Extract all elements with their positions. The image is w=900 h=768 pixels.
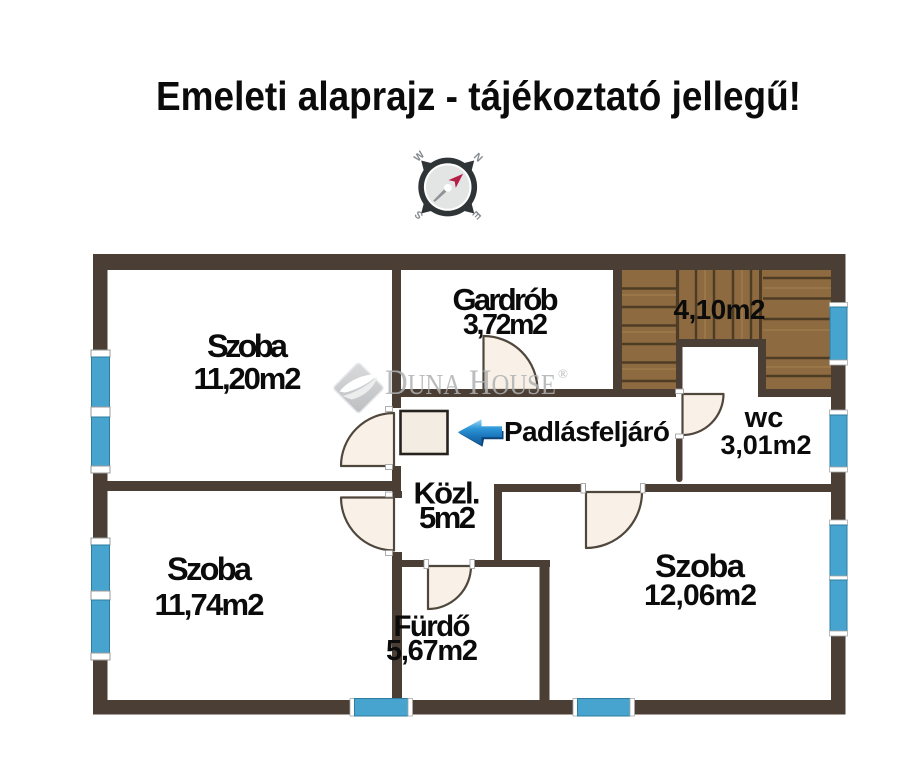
- svg-text:5,67m2: 5,67m2: [386, 635, 478, 667]
- svg-text:®: ®: [558, 366, 568, 381]
- svg-text:3,01m2: 3,01m2: [721, 430, 812, 460]
- svg-text:Szoba: Szoba: [207, 328, 289, 364]
- svg-text:12,06m2: 12,06m2: [644, 579, 757, 612]
- svg-text:Szoba: Szoba: [167, 551, 253, 587]
- svg-text:Padlásfeljáró: Padlásfeljáró: [504, 416, 670, 447]
- svg-text:3,72m2: 3,72m2: [463, 309, 548, 341]
- svg-text:4,10m2: 4,10m2: [674, 294, 766, 325]
- svg-text:11,74m2: 11,74m2: [155, 587, 265, 622]
- svg-text:5m2: 5m2: [419, 500, 476, 535]
- svg-text:Emeleti alaprajz - tájékoztató: Emeleti alaprajz - tájékoztató jellegű!: [156, 73, 801, 119]
- svg-text:11,20m2: 11,20m2: [194, 361, 302, 396]
